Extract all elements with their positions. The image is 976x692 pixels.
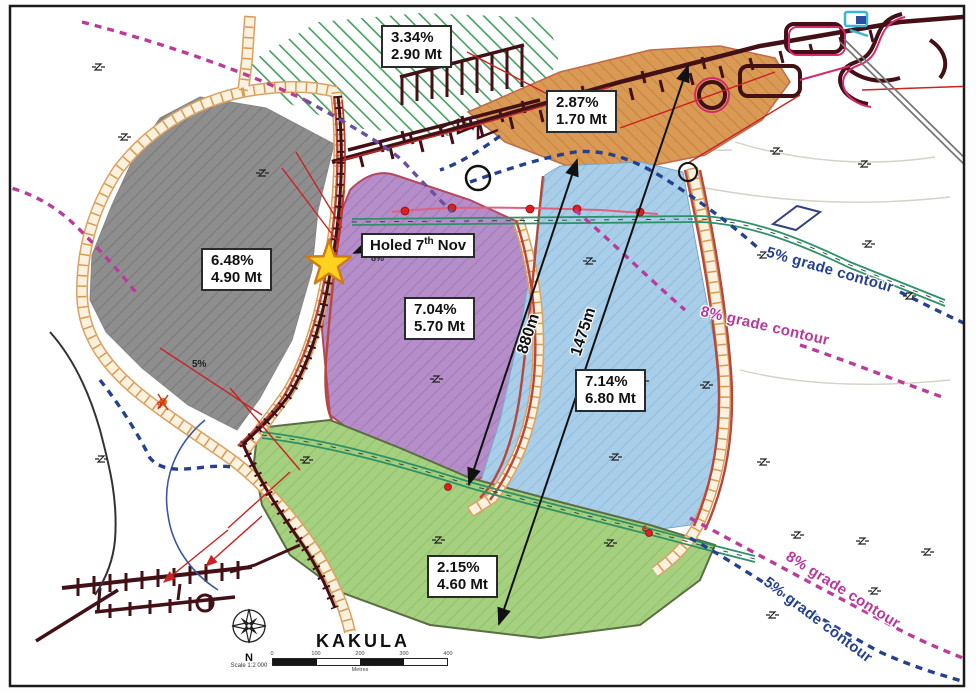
tonnage-value: 6.80 Mt [585, 390, 636, 407]
decline-marker-9: 9 [157, 400, 162, 410]
grade-label-purple-zone: 7.04% 5.70 Mt [404, 297, 475, 340]
map-title: KAKULA [316, 631, 410, 652]
compass-scale-note: Scale 1:2 000 [223, 663, 275, 670]
holed-text-tail: Nov [434, 237, 467, 254]
tonnage-value: 2.90 Mt [391, 46, 442, 63]
grade-value: 3.34% [391, 29, 442, 46]
grade-value: 6.48% [211, 252, 262, 269]
tonnage-value: 4.60 Mt [437, 576, 488, 593]
scale-bar: 0 100 200 300 400 Metres [272, 651, 448, 673]
grade-label-north-zone: 3.34% 2.90 Mt [381, 25, 452, 68]
small-marker-5pct: 5% [192, 359, 206, 370]
grade-value: 2.15% [437, 559, 488, 576]
grade-label-gray-zone: 6.48% 4.90 Mt [201, 248, 272, 291]
grade-label-orange-zone: 2.87% 1.70 Mt [546, 90, 617, 133]
compass-north-label: N [223, 653, 275, 663]
grade-value: 7.14% [585, 373, 636, 390]
scale-bar-ticks: 0 100 200 300 400 [272, 651, 448, 658]
grade-value: 2.87% [556, 94, 607, 111]
scale-tick: 400 [443, 651, 452, 657]
scale-tick: 100 [311, 651, 320, 657]
holed-callout: Holed 7th Nov [361, 233, 475, 258]
grade-label-green-zone: 2.15% 4.60 Mt [427, 555, 498, 598]
scale-tick: 200 [355, 651, 364, 657]
decline-marker-6: 6 [642, 524, 647, 534]
holed-superscript: th [424, 236, 433, 247]
scale-tick: 0 [270, 651, 273, 657]
compass-rose: N Scale 1:2 000 [223, 606, 275, 670]
scale-tick: 300 [399, 651, 408, 657]
holed-star-icon [302, 238, 352, 293]
tonnage-value: 5.70 Mt [414, 318, 465, 335]
tonnage-value: 4.90 Mt [211, 269, 262, 286]
grade-label-blue-zone: 7.14% 6.80 Mt [575, 369, 646, 412]
holed-text: Holed 7 [370, 237, 424, 254]
scale-bar-unit: Metres [272, 667, 448, 673]
scale-bar-segments [272, 658, 448, 666]
kakula-mine-map: 3.34% 2.90 Mt 2.87% 1.70 Mt 6.48% 4.90 M… [0, 0, 976, 692]
compass-rose-icon [223, 606, 275, 648]
grade-value: 7.04% [414, 301, 465, 318]
tonnage-value: 1.70 Mt [556, 111, 607, 128]
